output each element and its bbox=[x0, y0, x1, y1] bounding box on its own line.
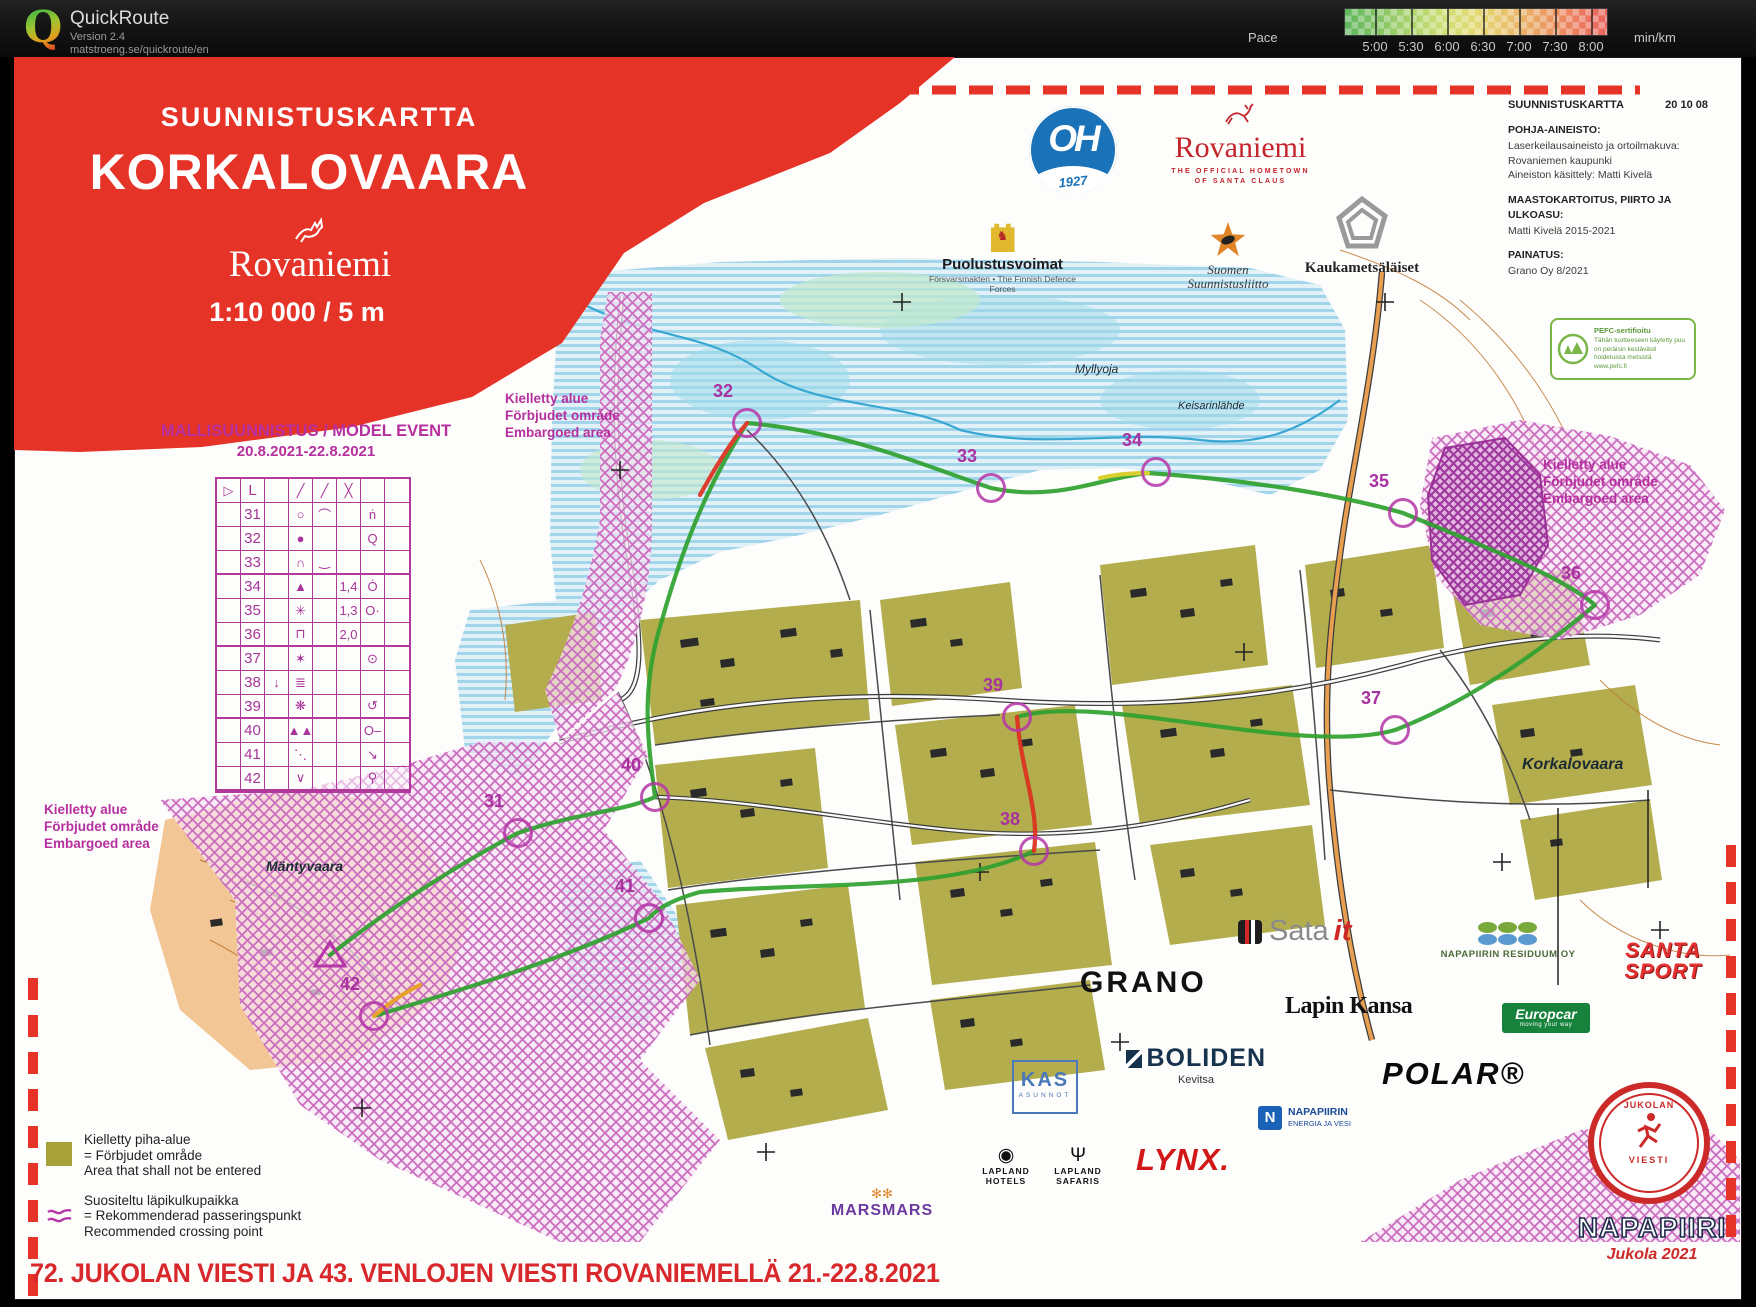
kas-sub: ASUNNOT bbox=[1014, 1092, 1076, 1099]
santa-sport-logo: SANTA SPORT bbox=[1608, 940, 1718, 982]
control-table-cell: 38 bbox=[241, 671, 265, 695]
control-circle-36 bbox=[1580, 590, 1610, 620]
control-table-cell: ↓ bbox=[265, 671, 289, 695]
pefc-trees-icon bbox=[1556, 332, 1590, 366]
control-table-cell bbox=[385, 599, 409, 623]
control-number-42: 42 bbox=[324, 974, 360, 995]
sport-line: SPORT bbox=[1608, 961, 1718, 982]
control-table-cell bbox=[217, 599, 241, 623]
control-table-cell bbox=[217, 767, 241, 791]
control-table-cell: ‿ bbox=[313, 551, 337, 575]
control-table-cell: ▷ bbox=[217, 479, 241, 503]
control-number-31: 31 bbox=[468, 791, 504, 812]
lapland-hotels-icon: ◉ bbox=[976, 1146, 1036, 1166]
control-table-cell: 31 bbox=[241, 503, 265, 527]
pace-tick bbox=[1519, 9, 1521, 35]
control-table-cell: 35 bbox=[241, 599, 265, 623]
residential-blocks bbox=[505, 545, 1662, 1140]
pace-tick-label: 8:00 bbox=[1578, 39, 1603, 54]
pefc-line: on peräisin kestävästi bbox=[1594, 346, 1685, 355]
embargo-area-note: Kielletty alueFörbjudet områdeEmbargoed … bbox=[1543, 456, 1658, 507]
credits-heading: POHJA-AINEISTO: bbox=[1508, 123, 1708, 138]
credits-line: Grano Oy 8/2021 bbox=[1508, 264, 1708, 279]
control-table-cell bbox=[265, 551, 289, 575]
pace-tick bbox=[1555, 9, 1557, 35]
federation-name: Suomen Suunnistusliitto bbox=[1168, 263, 1288, 291]
control-table-cell: 1,4 bbox=[337, 575, 361, 599]
credits-heading: PAINATUS: bbox=[1508, 248, 1708, 263]
map-kicker: SUUNNISTUSKARTTA bbox=[104, 102, 534, 133]
control-table-cell bbox=[217, 671, 241, 695]
control-number-35: 35 bbox=[1353, 471, 1389, 492]
control-table-cell: 40 bbox=[241, 719, 265, 743]
control-table-cell: ∨ bbox=[289, 767, 313, 791]
crossing-point-icon bbox=[46, 1207, 72, 1225]
control-table-cell: ○ bbox=[289, 503, 313, 527]
control-table-cell bbox=[265, 743, 289, 767]
pace-unit: min/km bbox=[1634, 30, 1676, 45]
kas-asunnot-logo: KAS ASUNNOT bbox=[1012, 1060, 1078, 1114]
control-table-cell bbox=[337, 551, 361, 575]
credits-line: Matti Kivelä 2015-2021 bbox=[1508, 224, 1708, 239]
control-table-cell: ╱ bbox=[313, 479, 337, 503]
control-table-cell bbox=[265, 695, 289, 719]
neve-line1: NAPAPIIRIN bbox=[1288, 1106, 1348, 1118]
control-table-cell: ∩ bbox=[289, 551, 313, 575]
polar-logo: POLAR® bbox=[1382, 1056, 1525, 1092]
control-number-40: 40 bbox=[605, 755, 641, 776]
control-number-41: 41 bbox=[599, 876, 635, 897]
pefc-line: Tähän tuotteeseen käytetty puu bbox=[1594, 337, 1685, 346]
grano-logo: GRANO bbox=[1080, 966, 1207, 1000]
control-table-cell bbox=[385, 503, 409, 527]
suunnistusliitto-logo: Suomen Suunnistusliitto bbox=[1168, 222, 1288, 291]
orienteering-federation-star-icon bbox=[1210, 222, 1246, 258]
control-table-cell: ⊙ bbox=[361, 647, 385, 671]
place-label: Keisarinlähde bbox=[1178, 400, 1245, 412]
lapland-hotels-logo: ◉ LAPLANDHOTELS bbox=[976, 1146, 1036, 1186]
it-word: it bbox=[1334, 915, 1352, 948]
map-credits: SUUNNISTUSKARTTA 20 10 08 POHJA-AINEISTO… bbox=[1508, 98, 1708, 279]
europcar-name: Europcar bbox=[1502, 1006, 1590, 1022]
control-table-cell: ✳ bbox=[289, 599, 313, 623]
control-table-cell bbox=[385, 719, 409, 743]
place-label: Korkalovaara bbox=[1522, 756, 1623, 774]
napapiirin-energia-logo: N NAPAPIIRINENERGIA JA VESI bbox=[1258, 1106, 1351, 1130]
legend-line: Area that shall not be entered bbox=[84, 1163, 261, 1179]
pace-tick bbox=[1591, 9, 1593, 35]
control-table-cell bbox=[217, 623, 241, 647]
control-table-cell bbox=[385, 671, 409, 695]
kas-name: KAS bbox=[1014, 1069, 1076, 1092]
lapland-safaris-logo: Ψ LAPLANDSAFARIS bbox=[1046, 1146, 1110, 1186]
pefc-title: PEFC-sertifioitu bbox=[1594, 326, 1651, 335]
control-circle-31 bbox=[503, 818, 533, 848]
model-event-heading: MALLISUUNNISTUS / MODEL EVENT 20.8.2021-… bbox=[150, 422, 462, 460]
control-circle-40 bbox=[640, 782, 670, 812]
map-title: KORKALOVAARA bbox=[44, 143, 574, 201]
control-table-cell bbox=[385, 623, 409, 647]
credits-line: Laserkeilausaineisto ja ortoilmakuva: bbox=[1508, 139, 1708, 154]
control-table-cell: ● bbox=[289, 527, 313, 551]
control-table-cell: O– bbox=[361, 719, 385, 743]
control-table-cell: ▲▲ bbox=[289, 719, 313, 743]
control-table-cell bbox=[313, 623, 337, 647]
control-table-cell bbox=[361, 623, 385, 647]
control-table-cell bbox=[217, 551, 241, 575]
control-circle-38 bbox=[1019, 836, 1049, 866]
control-number-37: 37 bbox=[1345, 688, 1381, 709]
control-description-table: ▷L╱╱╳31○⌒ṅ32●Q33∩‿34▲1,4Ȯ35✳1,3O·36⊓2,03… bbox=[215, 477, 411, 793]
legend-crossing-point: Suositeltu läpikulkupaikka = Rekommender… bbox=[46, 1193, 301, 1240]
control-table-cell bbox=[265, 527, 289, 551]
control-number-36: 36 bbox=[1545, 563, 1581, 584]
control-table-cell bbox=[337, 527, 361, 551]
control-table-cell bbox=[265, 479, 289, 503]
pace-tick bbox=[1411, 9, 1413, 35]
pace-label: Pace bbox=[1248, 30, 1278, 45]
quickroute-logo-icon: Q bbox=[24, 2, 62, 53]
legend-line: Suositeltu läpikulkupaikka bbox=[84, 1193, 301, 1209]
control-table-cell bbox=[361, 671, 385, 695]
control-table-cell: ✶ bbox=[289, 647, 313, 671]
sata-it-logo: Sata it bbox=[1238, 915, 1351, 948]
emblem-inner-ring bbox=[1599, 1093, 1699, 1193]
control-table-cell bbox=[313, 743, 337, 767]
pace-tick-label: 7:30 bbox=[1542, 39, 1567, 54]
control-table-cell bbox=[385, 479, 409, 503]
ounasvaaran-hiihtoseura-logo: OH 1927 bbox=[1029, 106, 1117, 194]
control-table-cell bbox=[337, 767, 361, 791]
pace-tick-label: 7:00 bbox=[1506, 39, 1531, 54]
pace-tick bbox=[1375, 9, 1377, 35]
pace-tick bbox=[1447, 9, 1449, 35]
event-footer-text: 72. JUKOLAN VIESTI JA 43. VENLOJEN VIEST… bbox=[30, 1258, 940, 1289]
control-table-cell: ≣ bbox=[289, 671, 313, 695]
neve-line2: ENERGIA JA VESI bbox=[1288, 1118, 1351, 1129]
control-circle-35 bbox=[1388, 498, 1418, 528]
lapland-safaris-icon: Ψ bbox=[1046, 1146, 1110, 1166]
control-table-cell bbox=[217, 503, 241, 527]
control-table-cell: ↘ bbox=[361, 743, 385, 767]
europcar-tagline: moving your way bbox=[1502, 1022, 1590, 1028]
control-table-cell bbox=[265, 623, 289, 647]
kaukametsalaiset-pentagon-icon bbox=[1335, 196, 1389, 252]
control-table-cell bbox=[265, 503, 289, 527]
embargo-area-note: Kielletty alueFörbjudet områdeEmbargoed … bbox=[44, 801, 159, 852]
control-number-34: 34 bbox=[1106, 430, 1142, 451]
control-table-cell bbox=[385, 647, 409, 671]
boliden-site: Kevitsa bbox=[1126, 1074, 1266, 1086]
place-label: Mäntyvaara bbox=[266, 858, 343, 874]
jukola-2021-wordmark: Jukola 2021 bbox=[1592, 1246, 1712, 1264]
credits-title: SUUNNISTUSKARTTA bbox=[1508, 98, 1624, 113]
legend-line: Recommended crossing point bbox=[84, 1224, 301, 1240]
control-table-cell bbox=[385, 743, 409, 767]
embargo-area-note: Kielletty alueFörbjudet områdeEmbargoed … bbox=[505, 390, 620, 441]
europcar-logo: Europcar moving your way bbox=[1502, 1003, 1590, 1033]
control-table-cell bbox=[313, 527, 337, 551]
control-table-cell bbox=[265, 719, 289, 743]
control-table-cell bbox=[385, 527, 409, 551]
control-table-cell: Ȯ bbox=[361, 575, 385, 599]
kaukametsalaiset-logo: Kaukametsäläiset bbox=[1292, 196, 1432, 277]
legend-line: = Förbjudet område bbox=[84, 1148, 261, 1164]
pace-tick bbox=[1483, 9, 1485, 35]
boliden-logo: BOLIDEN Kevitsa bbox=[1126, 1044, 1266, 1086]
napapiiri-wordmark: NAPAPIIRI bbox=[1572, 1212, 1732, 1244]
rovaniemi-tagline-1: THE OFFICIAL HOMETOWN bbox=[1148, 168, 1333, 175]
credits-line: Rovaniemen kaupunki bbox=[1508, 154, 1708, 169]
kaukametsalaiset-name: Kaukametsäläiset bbox=[1292, 260, 1432, 277]
control-table-cell bbox=[337, 647, 361, 671]
control-table-cell bbox=[217, 647, 241, 671]
control-table-cell bbox=[313, 575, 337, 599]
control-table-cell bbox=[361, 479, 385, 503]
control-table-cell bbox=[313, 671, 337, 695]
control-table-cell bbox=[313, 695, 337, 719]
control-table-cell bbox=[313, 719, 337, 743]
control-table-cell: O· bbox=[361, 599, 385, 623]
control-table-cell: ╳ bbox=[337, 479, 361, 503]
control-circle-42 bbox=[359, 1001, 389, 1031]
control-table-cell: 42 bbox=[241, 767, 265, 791]
map-legend: Kielletty piha-alue = Förbjudet område A… bbox=[46, 1132, 301, 1253]
defence-forces-castle-icon: ♞ bbox=[991, 222, 1015, 252]
pace-gradient-bar: 5:005:306:006:307:007:308:00 bbox=[1344, 8, 1608, 36]
control-table-cell bbox=[337, 719, 361, 743]
place-label: Myllyoja bbox=[1075, 362, 1118, 376]
residuum-name: NAPAPIIRIN RESIDUUM OY bbox=[1428, 949, 1588, 960]
control-table-cell bbox=[337, 671, 361, 695]
rovaniemi-logo: Rovaniemi THE OFFICIAL HOMETOWN OF SANTA… bbox=[1148, 100, 1333, 185]
pace-tick-label: 5:00 bbox=[1362, 39, 1387, 54]
control-table-cell: ▲ bbox=[289, 575, 313, 599]
legend-line: Kielletty piha-alue bbox=[84, 1132, 261, 1148]
model-event-title: MALLISUUNNISTUS / MODEL EVENT bbox=[150, 422, 462, 441]
rovaniemi-reindeer-icon bbox=[1224, 100, 1258, 126]
control-circle-34 bbox=[1141, 457, 1171, 487]
credits-line: Aineiston käsittely: Matti Kivelä bbox=[1508, 168, 1708, 183]
pace-tick-label: 6:00 bbox=[1434, 39, 1459, 54]
control-table-cell: 37 bbox=[241, 647, 265, 671]
marsmars-icon: ✻✻ bbox=[822, 1186, 942, 1202]
control-table-cell: 32 bbox=[241, 527, 265, 551]
control-table-cell: ⋱ bbox=[289, 743, 313, 767]
control-table-cell bbox=[265, 647, 289, 671]
control-number-38: 38 bbox=[984, 809, 1020, 830]
control-table-cell bbox=[361, 551, 385, 575]
boliden-icon bbox=[1126, 1050, 1142, 1068]
map-scale: 1:10 000 / 5 m bbox=[82, 297, 512, 328]
control-number-39: 39 bbox=[967, 675, 1003, 696]
olive-area-swatch bbox=[46, 1142, 72, 1166]
app-url-link[interactable]: matstroeng.se/quickroute/en bbox=[70, 44, 209, 56]
sata-word: Sata bbox=[1269, 915, 1329, 948]
control-table-cell bbox=[217, 527, 241, 551]
control-table-cell bbox=[313, 647, 337, 671]
control-circle-32 bbox=[732, 408, 762, 438]
app-version: Version 2.4 bbox=[70, 31, 125, 43]
pefc-label: PEFC-sertifioituTähän tuotteeseen käytet… bbox=[1550, 318, 1696, 380]
marsmars-name: MARSMARS bbox=[822, 1202, 942, 1220]
control-table-cell bbox=[265, 767, 289, 791]
control-table-cell bbox=[385, 767, 409, 791]
app-name: QuickRoute bbox=[70, 8, 169, 30]
defence-forces-subtitle: Försvarsmakten • The Finnish Defence For… bbox=[920, 274, 1085, 294]
control-table-cell bbox=[265, 599, 289, 623]
control-number-33: 33 bbox=[941, 446, 977, 467]
control-circle-33 bbox=[976, 473, 1006, 503]
pace-tick-label: 6:30 bbox=[1470, 39, 1495, 54]
legend-line: = Rekommenderad passeringspunkt bbox=[84, 1208, 301, 1224]
marsmars-logo: ✻✻ MARSMARS bbox=[822, 1186, 942, 1220]
control-table-cell: ṅ bbox=[361, 503, 385, 527]
control-table-cell: Q bbox=[361, 527, 385, 551]
energia-n-icon: N bbox=[1258, 1106, 1282, 1130]
rovaniemi-logo-name: Rovaniemi bbox=[1148, 131, 1333, 165]
pefc-line: hoidetuista metsistä bbox=[1594, 354, 1685, 363]
control-table-cell bbox=[313, 767, 337, 791]
app-titlebar: Q QuickRoute Version 2.4 matstroeng.se/q… bbox=[0, 0, 1756, 57]
control-table-cell: 33 bbox=[241, 551, 265, 575]
pace-tick-label: 5:30 bbox=[1398, 39, 1423, 54]
control-table-cell: 34 bbox=[241, 575, 265, 599]
map-city: Rovaniemi bbox=[110, 243, 510, 286]
control-table-cell bbox=[385, 695, 409, 719]
control-table-cell bbox=[265, 575, 289, 599]
control-table-cell: ⌒ bbox=[313, 503, 337, 527]
lynx-logo: LYNX. bbox=[1136, 1142, 1230, 1178]
control-table-cell: 39 bbox=[241, 695, 265, 719]
control-table-cell bbox=[385, 551, 409, 575]
control-circle-37 bbox=[1380, 715, 1410, 745]
defence-forces-name: Puolustusvoimat bbox=[920, 256, 1085, 273]
sata-it-icon bbox=[1238, 920, 1262, 944]
rovaniemi-tagline-2: OF SANTA CLAUS bbox=[1148, 178, 1333, 185]
control-table-cell bbox=[217, 695, 241, 719]
control-table-cell: ⊓ bbox=[289, 623, 313, 647]
control-circle-41 bbox=[634, 903, 664, 933]
control-table-cell bbox=[313, 599, 337, 623]
control-table-cell: L bbox=[241, 479, 265, 503]
control-number-32: 32 bbox=[697, 381, 733, 402]
santa-line: SANTA bbox=[1608, 940, 1718, 961]
control-table-cell: 1,3 bbox=[337, 599, 361, 623]
control-table-cell: ↺ bbox=[361, 695, 385, 719]
control-table-cell: ╱ bbox=[289, 479, 313, 503]
control-circle-39 bbox=[1002, 702, 1032, 732]
napapiiri-jukola-emblem: JUKOLAN VIESTI bbox=[1588, 1082, 1710, 1204]
puolustusvoimat-logo: ♞ Puolustusvoimat Försvarsmakten • The F… bbox=[920, 222, 1085, 294]
control-table-cell bbox=[337, 503, 361, 527]
credits-heading: MAASTOKARTOITUS, PIIRTO JA ULKOASU: bbox=[1508, 193, 1708, 222]
pefc-line: www.pefc.fi bbox=[1594, 363, 1685, 372]
napapiirin-residuum-logo: NAPAPIIRIN RESIDUUM OY bbox=[1428, 922, 1588, 960]
control-table-cell: ❋ bbox=[289, 695, 313, 719]
control-table-cell bbox=[337, 695, 361, 719]
boliden-name: BOLIDEN bbox=[1147, 1044, 1267, 1073]
control-table-cell bbox=[385, 575, 409, 599]
credits-code: 20 10 08 bbox=[1665, 98, 1708, 113]
control-table-cell: 36 bbox=[241, 623, 265, 647]
oh-badge-letters: OH bbox=[1029, 118, 1117, 160]
control-table-cell: ⚲ bbox=[361, 767, 385, 791]
control-table-cell bbox=[217, 575, 241, 599]
residuum-leaves-icon bbox=[1475, 922, 1541, 946]
model-event-dates: 20.8.2021-22.8.2021 bbox=[150, 443, 462, 460]
control-table-cell bbox=[217, 743, 241, 767]
control-table-cell: 2,0 bbox=[337, 623, 361, 647]
control-table-cell bbox=[217, 719, 241, 743]
legend-forbidden-area: Kielletty piha-alue = Förbjudet område A… bbox=[46, 1132, 301, 1179]
control-table-cell bbox=[337, 743, 361, 767]
lapin-kansa-logo: Lapin Kansa bbox=[1285, 993, 1412, 1020]
control-table-cell: 41 bbox=[241, 743, 265, 767]
